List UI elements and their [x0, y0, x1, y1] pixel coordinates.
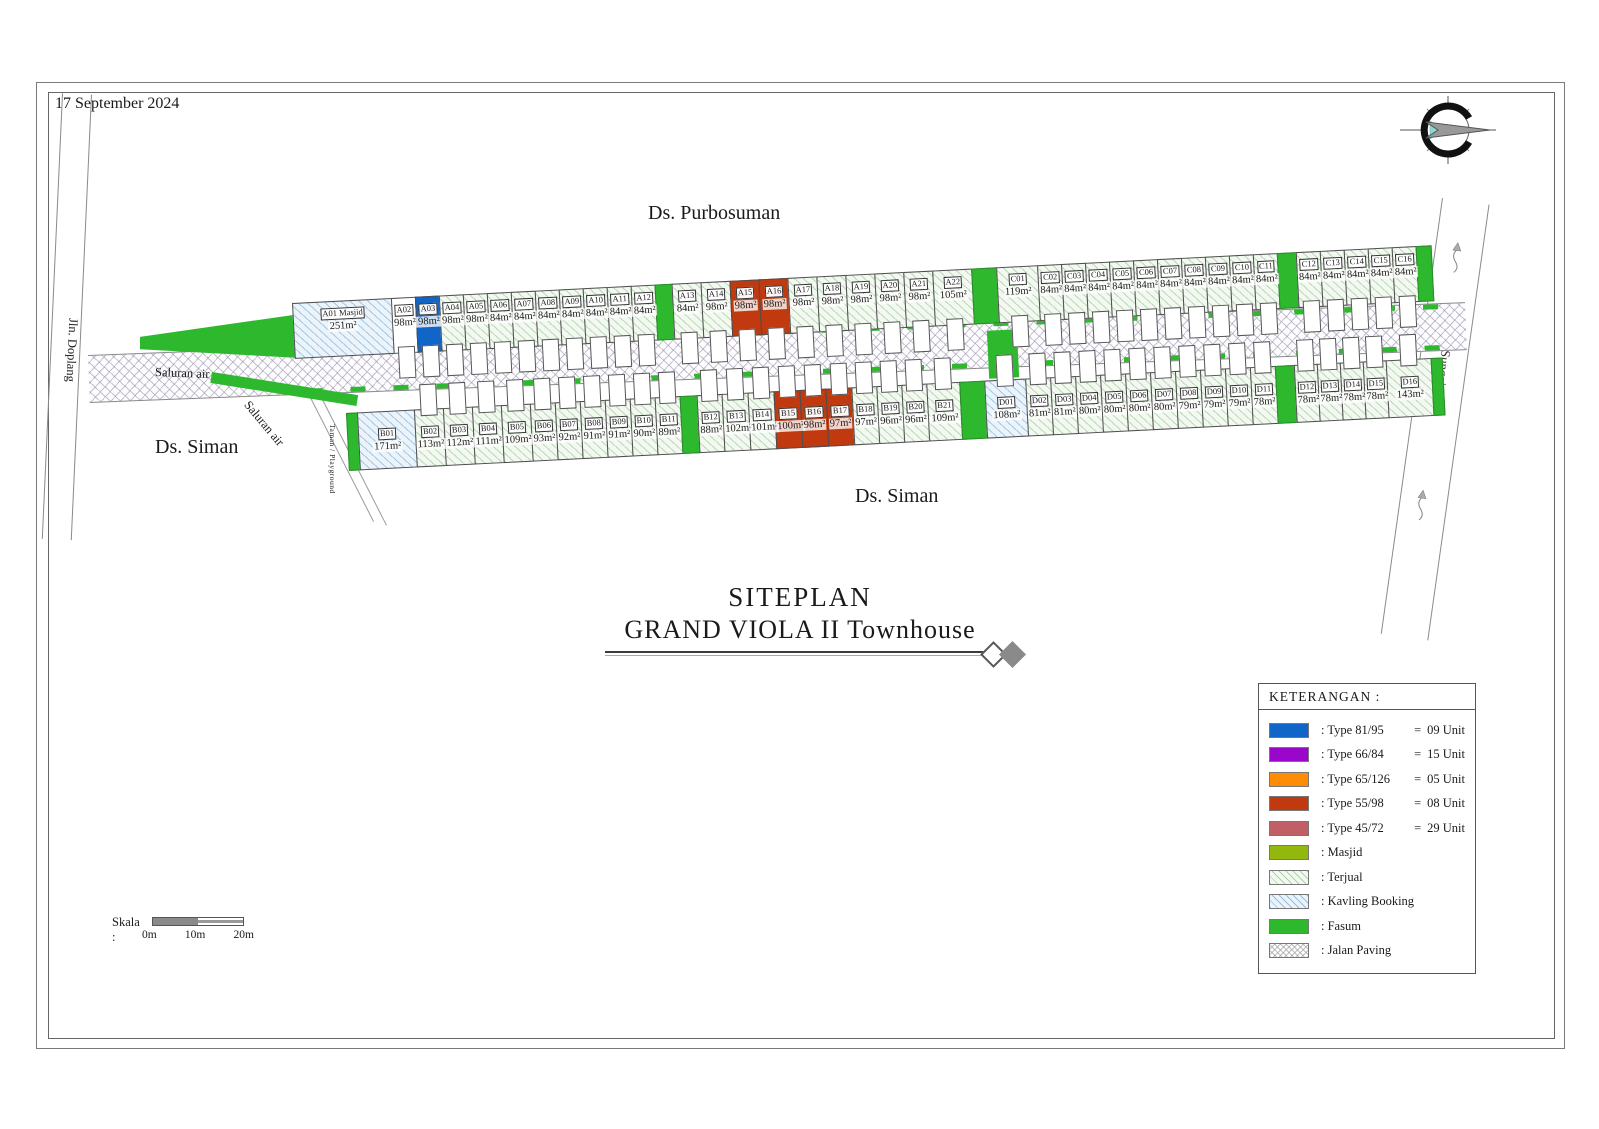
type-81-95-swatch: [1269, 723, 1309, 738]
plot-area: 98m²: [762, 298, 786, 310]
plot-id: C15: [1371, 254, 1390, 267]
plot-A15: A1598m²: [729, 279, 762, 336]
plot-area: 84m²: [1039, 284, 1063, 296]
legend-label: : Masjid: [1321, 845, 1413, 860]
plot-area: 80m²: [1103, 403, 1127, 415]
scale-tick: 20m: [234, 929, 254, 941]
plot-id: B02: [421, 425, 440, 438]
plot-area: 78m²: [1296, 393, 1320, 405]
legend-item-type-65-126: : Type 65/126=05 Unit: [1269, 767, 1465, 792]
house-footprint: [1028, 353, 1047, 386]
plot-area: 84m²: [1255, 273, 1279, 285]
plot-id: C11: [1257, 260, 1275, 273]
plot-id: B14: [753, 408, 772, 421]
plot-area: 78m²: [1252, 396, 1276, 408]
jln-doplang-label: Jln. Doplang: [63, 318, 81, 383]
house-footprint: [1228, 342, 1247, 375]
house-footprint: [558, 376, 577, 409]
house-footprint: [633, 373, 652, 406]
scale-ticks: 0m 10m 20m: [142, 929, 254, 941]
plot-id: D05: [1105, 391, 1124, 404]
plot-area: 84m²: [1394, 266, 1418, 278]
plot-area: 84m²: [1159, 278, 1183, 290]
plot-area: 98m²: [734, 299, 758, 311]
plot-area: 91m²: [582, 430, 606, 442]
plot-B02: B02113m²: [414, 408, 447, 467]
plot-area: 81m²: [1053, 406, 1077, 418]
house-footprint: [1187, 306, 1206, 339]
plot-id: D11: [1255, 383, 1274, 396]
plot-B03: B03112m²: [443, 407, 476, 466]
plot-area: 79m²: [1202, 398, 1226, 410]
plot-B05: B05109m²: [501, 404, 534, 463]
plot-area: 98m²: [803, 418, 827, 430]
house-footprint: [912, 320, 931, 353]
plot-area: 105m²: [939, 289, 969, 301]
plot-area: 84m²: [1370, 267, 1394, 279]
siteplan-page: 17 September 2024 Ds. Purbosuman Ds. Sim…: [0, 0, 1599, 1129]
legend-unit-count: 09 Unit: [1427, 723, 1465, 738]
plot-id: D12: [1297, 381, 1316, 394]
house-footprint: [933, 357, 952, 390]
plot-area: 98m²: [417, 315, 441, 327]
plot-id: D07: [1154, 388, 1173, 401]
plot-id: D14: [1343, 379, 1362, 392]
plot-B17: B1797m²: [825, 387, 855, 446]
masjid-swatch: [1269, 845, 1309, 860]
plot-id: B19: [881, 402, 900, 415]
house-footprint: [469, 342, 488, 375]
scale-tick: 10m: [185, 929, 205, 941]
scale-tick: 0m: [142, 929, 157, 941]
plot-B04: B04111m²: [472, 405, 505, 464]
plot-id: A17: [793, 284, 812, 297]
plot-area: 91m²: [607, 428, 631, 440]
plot-B15: B15100m²: [773, 390, 803, 449]
house-footprint: [1350, 298, 1369, 331]
plot-id: B08: [584, 417, 603, 430]
house-footprint: [854, 323, 873, 356]
plot-id: B16: [805, 406, 824, 419]
plot-id: D15: [1366, 377, 1385, 390]
house-footprint: [796, 326, 815, 359]
legend-item-kavling-booking: : Kavling Booking: [1269, 890, 1465, 915]
legend-equals: =: [1408, 747, 1427, 762]
plot-A18: A1898m²: [816, 275, 849, 332]
plot-A22: A22105m²: [932, 269, 975, 327]
area-label-siman-bottom: Ds. Siman: [855, 485, 938, 508]
plot-id: D06: [1130, 389, 1149, 402]
legend-label: : Fasum: [1321, 919, 1413, 934]
legend-label: : Terjual: [1321, 870, 1413, 885]
plot-area: 80m²: [1153, 401, 1177, 413]
plot-id: C04: [1089, 269, 1108, 282]
plot-id: B13: [727, 410, 746, 423]
plot-id: B21: [935, 399, 954, 412]
plot-A01: A01 Masjid251m²: [292, 298, 395, 359]
plot-B14: B14101m²: [747, 391, 777, 450]
fasum-strip: [1416, 245, 1435, 302]
house-footprint: [419, 383, 438, 416]
type-45-72-swatch: [1269, 821, 1309, 836]
plot-id: D10: [1229, 384, 1248, 397]
house-footprint: [1399, 334, 1418, 367]
house-footprint: [880, 360, 899, 393]
plot-id: A19: [851, 281, 870, 294]
plot-id: C02: [1041, 271, 1060, 284]
legend-box: KETERANGAN : : Type 81/95=09 Unit: Type …: [1258, 683, 1476, 974]
house-footprint: [1053, 351, 1072, 384]
page-subtitle: GRAND VIOLA II Townhouse: [540, 615, 1060, 645]
plot-id: B20: [906, 401, 925, 414]
house-footprint: [613, 335, 632, 368]
house-footprint: [803, 364, 822, 397]
house-footprint: [767, 327, 786, 360]
house-footprint: [700, 369, 719, 402]
house-footprint: [825, 324, 844, 357]
plot-id: A22: [943, 276, 962, 289]
taman-playground-label: Taman / Playground: [328, 424, 337, 494]
house-footprint: [608, 374, 627, 407]
house-footprint: [946, 318, 965, 351]
plot-id: A09: [562, 295, 581, 308]
house-footprint: [506, 379, 525, 412]
plot-area: 251m²: [328, 319, 358, 331]
house-footprint: [1103, 349, 1122, 382]
plot-id: A06: [490, 299, 509, 312]
plot-area: 84m²: [489, 312, 513, 324]
legend-item-fasum: : Fasum: [1269, 914, 1465, 939]
house-footprint: [541, 339, 560, 372]
plot-area: 92m²: [557, 431, 581, 443]
plot-id: A01 Masjid: [320, 306, 365, 320]
plot-id: C03: [1065, 270, 1084, 283]
house-footprint: [1153, 346, 1172, 379]
plot-id: C01: [1008, 273, 1027, 286]
plot-id: A04: [442, 301, 461, 314]
plot-area: 81m²: [1028, 407, 1052, 419]
house-footprint: [1398, 295, 1417, 328]
plot-area: 93m²: [532, 432, 556, 444]
plot-D16: D16143m²: [1386, 358, 1435, 418]
house-footprint: [517, 340, 536, 373]
house-footprint: [658, 371, 677, 404]
kavling-booking-swatch: [1269, 894, 1309, 909]
plot-area: 84m²: [1183, 276, 1207, 288]
plot-id: C05: [1113, 268, 1132, 281]
plot-id: A10: [586, 294, 605, 307]
legend-item-type-45-72: : Type 45/72=29 Unit: [1269, 816, 1465, 841]
title-block: SITEPLAN GRAND VIOLA II Townhouse: [540, 582, 1060, 645]
plot-area: 79m²: [1178, 399, 1202, 411]
plot-id: C07: [1161, 265, 1180, 278]
plot-area: 98m²: [705, 301, 729, 313]
plot-id: C13: [1323, 257, 1342, 270]
plot-area: 84m²: [1231, 274, 1255, 286]
plot-id: D08: [1179, 387, 1198, 400]
legend-label: : Type 66/84: [1321, 747, 1408, 762]
legend-items: : Type 81/95=09 Unit: Type 66/84=15 Unit…: [1259, 710, 1475, 973]
house-footprint: [1178, 345, 1197, 378]
plot-area: 80m²: [1128, 402, 1152, 414]
plot-id: A03: [418, 303, 437, 316]
legend-item-type-66-84: : Type 66/84=15 Unit: [1269, 743, 1465, 768]
house-footprint: [589, 336, 608, 369]
plot-id: B04: [479, 422, 498, 435]
legend-equals: =: [1408, 723, 1427, 738]
title-rule: [605, 651, 987, 656]
house-footprint: [829, 363, 848, 396]
plot-area: 98m²: [441, 314, 465, 326]
legend-label: : Type 55/98: [1321, 796, 1408, 811]
plot-area: 100m²: [776, 420, 806, 432]
plot-area: 98m²: [393, 316, 417, 328]
house-footprint: [1091, 311, 1110, 344]
plot-id: B10: [634, 414, 653, 427]
area-label-siman-left: Ds. Siman: [155, 436, 238, 459]
house-footprint: [738, 329, 757, 362]
plot-id: B15: [779, 407, 798, 420]
scale-label: Skala :: [112, 915, 140, 945]
scale-bar-graphic: [152, 917, 244, 926]
plot-id: D16: [1400, 376, 1419, 389]
plot-id: B01: [378, 427, 397, 440]
house-footprint: [1365, 335, 1384, 368]
house-footprint: [637, 334, 656, 367]
plot-area: 89m²: [657, 426, 681, 438]
house-footprint: [1128, 347, 1147, 380]
plot-area: 84m²: [1298, 271, 1322, 283]
plot-C01: C01119m²: [996, 265, 1041, 323]
plot-area: 84m²: [1322, 269, 1346, 281]
flow-arrow-icon: [1408, 487, 1435, 524]
house-footprint: [421, 345, 440, 378]
plot-area: 84m²: [633, 304, 657, 316]
plot-id: B05: [508, 421, 527, 434]
plot-id: A12: [634, 292, 653, 305]
plot-id: B09: [609, 416, 628, 429]
plot-area: 84m²: [1346, 268, 1370, 280]
house-footprint: [709, 330, 728, 363]
compass-icon: [1398, 90, 1498, 170]
plot-id: B18: [856, 403, 875, 416]
plot-id: D04: [1080, 392, 1099, 405]
plot-id: A11: [610, 293, 629, 306]
legend-equals: =: [1408, 796, 1427, 811]
plot-id: A02: [394, 304, 413, 317]
plot-id: D13: [1320, 380, 1339, 393]
plot-area: 98m²: [820, 295, 844, 307]
legend-unit-count: 29 Unit: [1427, 821, 1465, 836]
plot-area: 111m²: [474, 435, 503, 447]
legend-unit-count: 05 Unit: [1427, 772, 1465, 787]
house-footprint: [777, 365, 796, 398]
plot-id: C06: [1137, 266, 1156, 279]
plot-area: 119m²: [1004, 285, 1033, 297]
legend-label: : Type 81/95: [1321, 723, 1408, 738]
house-footprint: [725, 368, 744, 401]
plot-area: 98m²: [849, 293, 873, 305]
legend-header: KETERANGAN :: [1259, 684, 1475, 710]
house-footprint: [680, 332, 699, 365]
house-footprint: [1078, 350, 1097, 383]
plot-area: 171m²: [373, 440, 403, 452]
plot-area: 96m²: [904, 413, 928, 425]
plot-id: A15: [735, 287, 754, 300]
house-footprint: [533, 378, 552, 411]
house-footprint: [1044, 313, 1063, 346]
plot-area: 78m²: [1342, 391, 1366, 403]
house-footprint: [1115, 309, 1134, 342]
plot-area: 109m²: [930, 412, 960, 424]
plot-area: 79m²: [1227, 397, 1251, 409]
plot-id: C16: [1395, 253, 1414, 266]
plot-id: A18: [822, 282, 841, 295]
plot-area: 84m²: [1063, 283, 1087, 295]
plot-area: 112m²: [445, 436, 474, 448]
plot-area: 84m²: [585, 307, 609, 319]
type-65-126-swatch: [1269, 772, 1309, 787]
house-footprint: [1139, 308, 1158, 341]
house-footprint: [1211, 305, 1230, 338]
jalan-paving-swatch: [1269, 943, 1309, 958]
house-footprint: [1319, 338, 1338, 371]
legend-label: : Jalan Paving: [1321, 943, 1413, 958]
house-footprint: [1326, 299, 1345, 332]
house-footprint: [493, 341, 512, 374]
plot-A17: A1798m²: [787, 276, 820, 333]
plot-id: B03: [450, 424, 469, 437]
plot-area: 96m²: [879, 415, 903, 427]
plot-B13: B13102m²: [722, 393, 752, 452]
area-label-purbosuman: Ds. Purbosuman: [648, 202, 780, 225]
house-footprint: [1067, 312, 1086, 345]
page-title: SITEPLAN: [540, 582, 1060, 613]
legend-label: : Kavling Booking: [1321, 894, 1413, 909]
house-footprint: [995, 354, 1014, 387]
plot-id: A07: [514, 298, 533, 311]
plot-area: 80m²: [1078, 405, 1102, 417]
legend-unit-count: 15 Unit: [1427, 747, 1465, 762]
house-footprint: [1235, 303, 1254, 336]
plot-area: 84m²: [1087, 281, 1111, 293]
house-footprint: [565, 337, 584, 370]
plot-area: 108m²: [992, 409, 1022, 421]
plot-id: A20: [880, 279, 899, 292]
plot-area: 84m²: [513, 310, 537, 322]
house-footprint: [397, 346, 416, 379]
house-footprint: [1203, 344, 1222, 377]
legend-item-jalan-paving: : Jalan Paving: [1269, 939, 1465, 964]
house-footprint: [1253, 341, 1272, 374]
fasum-swatch: [1269, 919, 1309, 934]
plot-area: 113m²: [416, 438, 445, 450]
plot-id: B07: [559, 418, 578, 431]
house-footprint: [1296, 339, 1315, 372]
plot-id: D03: [1055, 393, 1074, 406]
plot-id: D02: [1030, 394, 1049, 407]
plot-area: 84m²: [1135, 279, 1159, 291]
plot-area: 78m²: [1319, 392, 1343, 404]
legend-item-masjid: : Masjid: [1269, 841, 1465, 866]
scale-segment-dark: [153, 918, 198, 925]
plot-A19: A1998m²: [845, 273, 878, 330]
plot-B01: B01171m²: [357, 410, 418, 471]
legend-equals: =: [1408, 821, 1427, 836]
plot-area: 84m²: [561, 308, 585, 320]
house-footprint: [1163, 307, 1182, 340]
plot-D01: D01108m²: [984, 379, 1029, 439]
plot-A21: A2198m²: [903, 271, 936, 328]
legend-item-type-81-95: : Type 81/95=09 Unit: [1269, 718, 1465, 743]
house-footprint: [1302, 300, 1321, 333]
plot-A16: A1698m²: [758, 278, 791, 335]
plot-area: 97m²: [828, 417, 852, 429]
legend-label: : Type 65/126: [1321, 772, 1408, 787]
legend-item-type-55-98: : Type 55/98=08 Unit: [1269, 792, 1465, 817]
flow-arrow-icon: [1443, 239, 1470, 276]
plot-area: 84m²: [1207, 275, 1231, 287]
house-footprint: [1374, 296, 1393, 329]
saluran-air-label: Saluran air: [155, 365, 210, 382]
legend-label: : Type 45/72: [1321, 821, 1408, 836]
plot-id: B06: [535, 420, 554, 433]
plot-area: 143m²: [1396, 388, 1426, 400]
plot-area: 98m²: [791, 296, 815, 308]
plot-id: C14: [1347, 256, 1366, 269]
house-footprint: [583, 375, 602, 408]
plot-id: C09: [1209, 263, 1228, 276]
house-footprint: [477, 380, 496, 413]
plot-id: A21: [909, 278, 928, 291]
house-footprint: [855, 361, 874, 394]
type-66-84-swatch: [1269, 747, 1309, 762]
plot-id: D01: [997, 396, 1016, 409]
plot-A20: A2098m²: [874, 272, 907, 329]
legend-equals: =: [1408, 772, 1427, 787]
house-footprint: [1011, 315, 1030, 348]
legend-item-terjual: : Terjual: [1269, 865, 1465, 890]
plot-area: 84m²: [676, 302, 700, 314]
plot-area: 90m²: [632, 427, 656, 439]
legend-unit-count: 08 Unit: [1427, 796, 1465, 811]
plot-B16: B1698m²: [799, 389, 829, 448]
plot-id: B17: [831, 405, 850, 418]
plot-A13: A1384m²: [672, 282, 705, 339]
plot-id: A16: [764, 285, 783, 298]
house-footprint: [448, 382, 467, 415]
plot-area: 78m²: [1365, 390, 1389, 402]
plot-area: 84m²: [537, 309, 561, 321]
plot-A14: A1498m²: [700, 281, 733, 338]
plot-id: A08: [538, 297, 557, 310]
plot-area: 98m²: [465, 313, 489, 325]
plot-id: A14: [706, 288, 725, 301]
plot-id: D09: [1204, 386, 1223, 399]
plot-id: B12: [701, 411, 720, 424]
house-footprint: [905, 359, 924, 392]
plot-area: 97m²: [854, 416, 878, 428]
plot-id: C12: [1299, 258, 1318, 271]
plot-id: B11: [660, 413, 678, 426]
plot-area: 98m²: [878, 292, 902, 304]
plot-id: C08: [1185, 264, 1204, 277]
plot-area: 84m²: [609, 306, 633, 318]
plot-id: C10: [1233, 261, 1252, 274]
plot-id: A05: [466, 300, 485, 313]
house-footprint: [883, 321, 902, 354]
scale-segment-light: [198, 918, 243, 925]
